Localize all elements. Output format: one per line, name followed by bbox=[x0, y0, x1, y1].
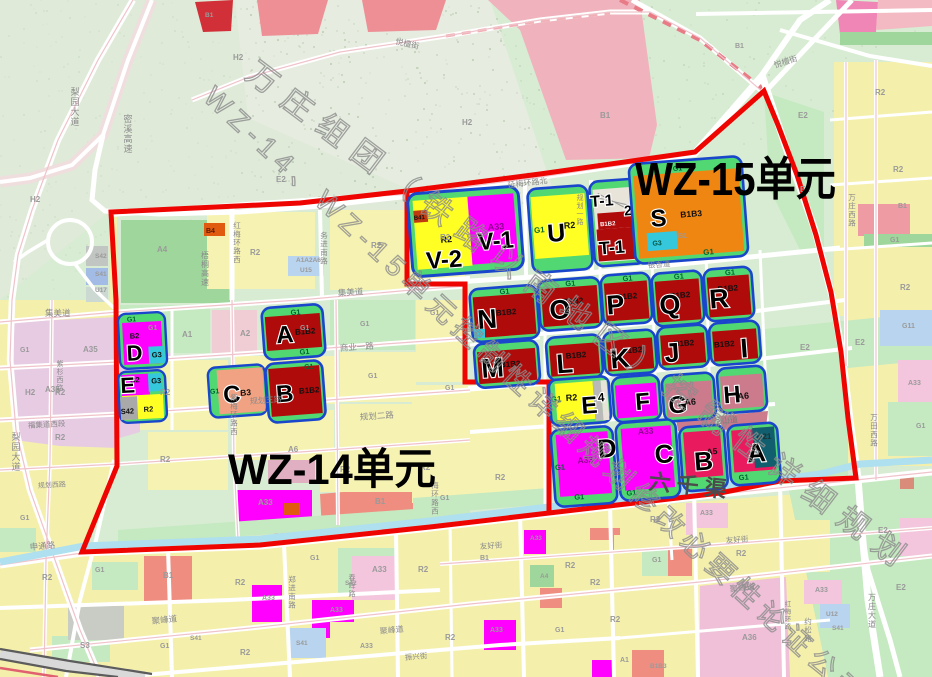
svg-text:G1: G1 bbox=[890, 237, 899, 244]
svg-text:A33: A33 bbox=[530, 535, 542, 542]
svg-text:A33: A33 bbox=[815, 587, 828, 594]
svg-text:E: E bbox=[580, 392, 598, 420]
svg-text:G1: G1 bbox=[555, 627, 564, 634]
svg-text:B1B2: B1B2 bbox=[299, 385, 321, 396]
svg-text:WZ-15单元: WZ-15单元 bbox=[635, 153, 836, 205]
svg-text:A33: A33 bbox=[908, 380, 921, 387]
svg-text:G1: G1 bbox=[310, 555, 319, 562]
svg-text:银杏道: 银杏道 bbox=[647, 258, 671, 270]
svg-text:G1: G1 bbox=[499, 287, 510, 297]
svg-text:G1: G1 bbox=[160, 643, 169, 650]
svg-text:G1: G1 bbox=[916, 423, 925, 430]
svg-text:A33: A33 bbox=[360, 643, 373, 650]
svg-text:R2: R2 bbox=[240, 648, 251, 657]
svg-text:R2: R2 bbox=[590, 578, 601, 587]
svg-text:R2: R2 bbox=[736, 549, 747, 558]
svg-text:万田西路: 万田西路 bbox=[870, 413, 878, 448]
svg-text:A33: A33 bbox=[262, 595, 275, 602]
svg-text:A1A2A6: A1A2A6 bbox=[296, 257, 321, 264]
svg-text:紫梅环路西: 紫梅环路西 bbox=[230, 393, 238, 436]
svg-text:G3: G3 bbox=[152, 350, 162, 360]
svg-text:4: 4 bbox=[597, 390, 605, 404]
svg-text:B1B3: B1B3 bbox=[680, 208, 703, 220]
svg-text:梨园大道: 梨园大道 bbox=[11, 431, 20, 472]
svg-text:A33: A33 bbox=[372, 565, 387, 574]
svg-text:E2: E2 bbox=[798, 111, 808, 120]
svg-text:R2: R2 bbox=[565, 392, 577, 403]
svg-text:集美道: 集美道 bbox=[45, 308, 71, 318]
svg-text:B1: B1 bbox=[480, 555, 489, 562]
svg-text:友好街: 友好街 bbox=[725, 533, 749, 545]
svg-text:B1B2: B1B2 bbox=[600, 221, 616, 228]
svg-text:R2: R2 bbox=[143, 404, 153, 413]
svg-text:B1B2: B1B2 bbox=[496, 307, 518, 318]
svg-text:G1: G1 bbox=[703, 247, 715, 257]
svg-text:G1: G1 bbox=[360, 321, 369, 328]
svg-text:友好街: 友好街 bbox=[479, 539, 503, 551]
svg-text:H2: H2 bbox=[462, 118, 473, 127]
svg-text:R2: R2 bbox=[563, 220, 575, 231]
svg-text:G1: G1 bbox=[299, 347, 310, 357]
svg-text:R2: R2 bbox=[893, 165, 904, 174]
svg-text:S41: S41 bbox=[95, 271, 107, 278]
svg-text:G1: G1 bbox=[445, 385, 454, 392]
svg-text:E2: E2 bbox=[800, 343, 810, 352]
svg-text:A1: A1 bbox=[620, 657, 629, 664]
svg-text:R2: R2 bbox=[42, 573, 53, 582]
svg-text:R2: R2 bbox=[235, 578, 246, 587]
svg-text:B4: B4 bbox=[206, 228, 215, 235]
svg-text:B1: B1 bbox=[375, 497, 386, 506]
svg-text:R2: R2 bbox=[160, 388, 171, 397]
svg-text:R2: R2 bbox=[495, 473, 506, 482]
svg-text:S41: S41 bbox=[832, 625, 844, 632]
svg-text:E2: E2 bbox=[896, 583, 906, 592]
svg-text:务进南路: 务进南路 bbox=[320, 230, 328, 266]
svg-text:A35: A35 bbox=[83, 345, 98, 354]
svg-text:B1: B1 bbox=[678, 233, 687, 240]
svg-text:福集道西段: 福集道西段 bbox=[28, 418, 66, 430]
svg-text:梧桐高速: 梧桐高速 bbox=[201, 250, 209, 287]
svg-text:G1: G1 bbox=[368, 373, 377, 380]
svg-text:F: F bbox=[634, 388, 651, 416]
svg-text:集美道: 集美道 bbox=[337, 286, 364, 298]
svg-text:R2: R2 bbox=[55, 433, 66, 442]
svg-text:R2: R2 bbox=[418, 565, 429, 574]
svg-text:G1: G1 bbox=[127, 316, 137, 323]
svg-text:S42: S42 bbox=[121, 406, 135, 416]
svg-text:红梅环路西: 红梅环路西 bbox=[233, 220, 241, 264]
svg-text:春晖路: 春晖路 bbox=[349, 573, 356, 598]
svg-text:梨园大道: 梨园大道 bbox=[70, 86, 79, 127]
svg-text:G1: G1 bbox=[20, 515, 29, 522]
svg-text:G1: G1 bbox=[725, 268, 736, 278]
svg-text:G1: G1 bbox=[210, 388, 220, 396]
svg-text:R2: R2 bbox=[610, 615, 621, 624]
svg-text:B1: B1 bbox=[600, 111, 611, 120]
svg-text:G1: G1 bbox=[622, 274, 633, 284]
svg-text:万庄大道: 万庄大道 bbox=[868, 593, 876, 629]
svg-text:A4: A4 bbox=[157, 245, 168, 254]
svg-text:A33: A33 bbox=[490, 627, 503, 634]
svg-text:A2: A2 bbox=[240, 329, 251, 338]
svg-text:U: U bbox=[546, 219, 566, 248]
svg-text:R2: R2 bbox=[875, 88, 886, 97]
svg-text:A6: A6 bbox=[737, 391, 749, 402]
svg-text:E: E bbox=[120, 372, 136, 398]
svg-text:G1: G1 bbox=[574, 492, 585, 502]
svg-text:密溪高速: 密溪高速 bbox=[123, 113, 132, 154]
svg-text:G1: G1 bbox=[738, 472, 749, 482]
svg-text:S42: S42 bbox=[95, 253, 107, 260]
svg-text:G1: G1 bbox=[300, 325, 309, 332]
svg-text:B: B bbox=[693, 445, 714, 476]
svg-text:R2: R2 bbox=[565, 561, 576, 570]
svg-text:U12: U12 bbox=[826, 611, 838, 618]
svg-text:R2: R2 bbox=[250, 248, 261, 257]
svg-text:G1: G1 bbox=[555, 462, 566, 472]
svg-text:G3: G3 bbox=[652, 240, 662, 248]
svg-text:A: A bbox=[275, 321, 294, 349]
svg-text:G1: G1 bbox=[652, 557, 661, 564]
svg-text:E2: E2 bbox=[855, 338, 865, 347]
svg-text:振兴街: 振兴街 bbox=[404, 650, 428, 662]
svg-text:A33: A33 bbox=[700, 510, 713, 517]
svg-text:A1: A1 bbox=[182, 330, 193, 339]
svg-text:U17: U17 bbox=[95, 287, 107, 294]
svg-text:A33: A33 bbox=[637, 426, 654, 437]
svg-text:V-2: V-2 bbox=[425, 245, 463, 275]
svg-text:B1: B1 bbox=[205, 12, 214, 19]
svg-text:R: R bbox=[708, 283, 730, 314]
svg-text:D: D bbox=[126, 340, 143, 366]
svg-text:G1: G1 bbox=[674, 272, 685, 282]
svg-text:G11: G11 bbox=[902, 323, 915, 330]
svg-text:G1: G1 bbox=[304, 364, 314, 372]
svg-text:C: C bbox=[653, 438, 674, 469]
svg-text:B1B2: B1B2 bbox=[714, 339, 736, 350]
svg-text:Q: Q bbox=[658, 289, 681, 320]
svg-text:万庄西路: 万庄西路 bbox=[848, 193, 856, 228]
svg-text:R2: R2 bbox=[160, 455, 171, 464]
svg-text:R2: R2 bbox=[900, 283, 911, 292]
svg-text:R2: R2 bbox=[445, 633, 456, 642]
svg-text:A33: A33 bbox=[330, 607, 343, 614]
svg-text:G1: G1 bbox=[20, 347, 29, 354]
svg-text:H2: H2 bbox=[25, 388, 36, 397]
svg-text:WZ-14单元: WZ-14单元 bbox=[228, 446, 436, 494]
svg-text:B1B3: B1B3 bbox=[650, 663, 667, 670]
svg-text:A36: A36 bbox=[742, 633, 757, 642]
svg-text:U15: U15 bbox=[300, 267, 312, 274]
svg-text:T-1: T-1 bbox=[598, 237, 625, 259]
svg-text:S3: S3 bbox=[80, 641, 90, 650]
svg-text:G1: G1 bbox=[534, 225, 546, 235]
svg-text:B1: B1 bbox=[898, 203, 907, 210]
svg-text:A33: A33 bbox=[258, 498, 273, 507]
svg-text:G1: G1 bbox=[290, 307, 301, 317]
svg-text:T-1: T-1 bbox=[590, 192, 614, 211]
svg-text:B2: B2 bbox=[130, 331, 140, 340]
svg-text:S41: S41 bbox=[190, 635, 202, 642]
svg-text:G1: G1 bbox=[440, 495, 449, 502]
svg-text:S: S bbox=[650, 205, 668, 233]
svg-text:规划一路: 规划一路 bbox=[577, 193, 584, 226]
svg-text:郑进南路: 郑进南路 bbox=[288, 574, 296, 610]
svg-text:B1: B1 bbox=[735, 43, 744, 50]
svg-text:H2: H2 bbox=[233, 53, 244, 62]
svg-text:G1: G1 bbox=[148, 325, 157, 332]
svg-text:L: L bbox=[555, 348, 574, 379]
svg-text:S41: S41 bbox=[296, 640, 308, 647]
svg-text:G1: G1 bbox=[95, 567, 104, 574]
svg-text:A4: A4 bbox=[540, 573, 549, 580]
svg-text:G3: G3 bbox=[151, 376, 161, 386]
svg-text:B1: B1 bbox=[163, 571, 174, 580]
svg-text:H2: H2 bbox=[30, 195, 41, 204]
